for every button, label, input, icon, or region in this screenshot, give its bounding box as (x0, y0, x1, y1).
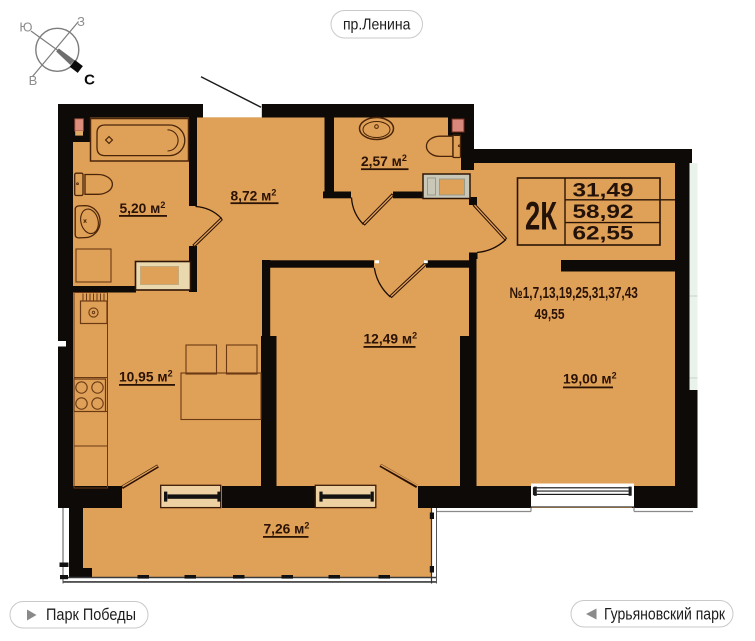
svg-text:2,57 м2: 2,57 м2 (361, 153, 407, 169)
svg-text:19,00 м2: 19,00 м2 (563, 371, 617, 387)
svg-text:10,95 м2: 10,95 м2 (119, 369, 173, 385)
svg-text:49,55: 49,55 (535, 306, 565, 322)
svg-text:7,26 м2: 7,26 м2 (264, 521, 310, 537)
svg-text:5,20 м2: 5,20 м2 (120, 200, 166, 216)
svg-text:В: В (29, 73, 38, 88)
svg-text:2К: 2К (525, 195, 557, 239)
svg-text:З: З (77, 14, 85, 29)
svg-text:С: С (84, 72, 95, 89)
svg-text:Ю: Ю (19, 20, 32, 35)
svg-text:Гурьяновский парк: Гурьяновский парк (604, 606, 726, 624)
svg-text:62,55: 62,55 (573, 224, 635, 245)
svg-text:Парк Победы: Парк Победы (46, 606, 136, 624)
svg-text:58,92: 58,92 (573, 202, 634, 223)
svg-text:31,49: 31,49 (573, 181, 634, 202)
svg-text:8,72 м2: 8,72 м2 (231, 188, 277, 204)
svg-text:пр.Ленина: пр.Ленина (343, 17, 411, 34)
svg-text:№1,7,13,19,25,31,37,43: №1,7,13,19,25,31,37,43 (510, 283, 639, 301)
svg-text:12,49 м2: 12,49 м2 (364, 331, 418, 347)
